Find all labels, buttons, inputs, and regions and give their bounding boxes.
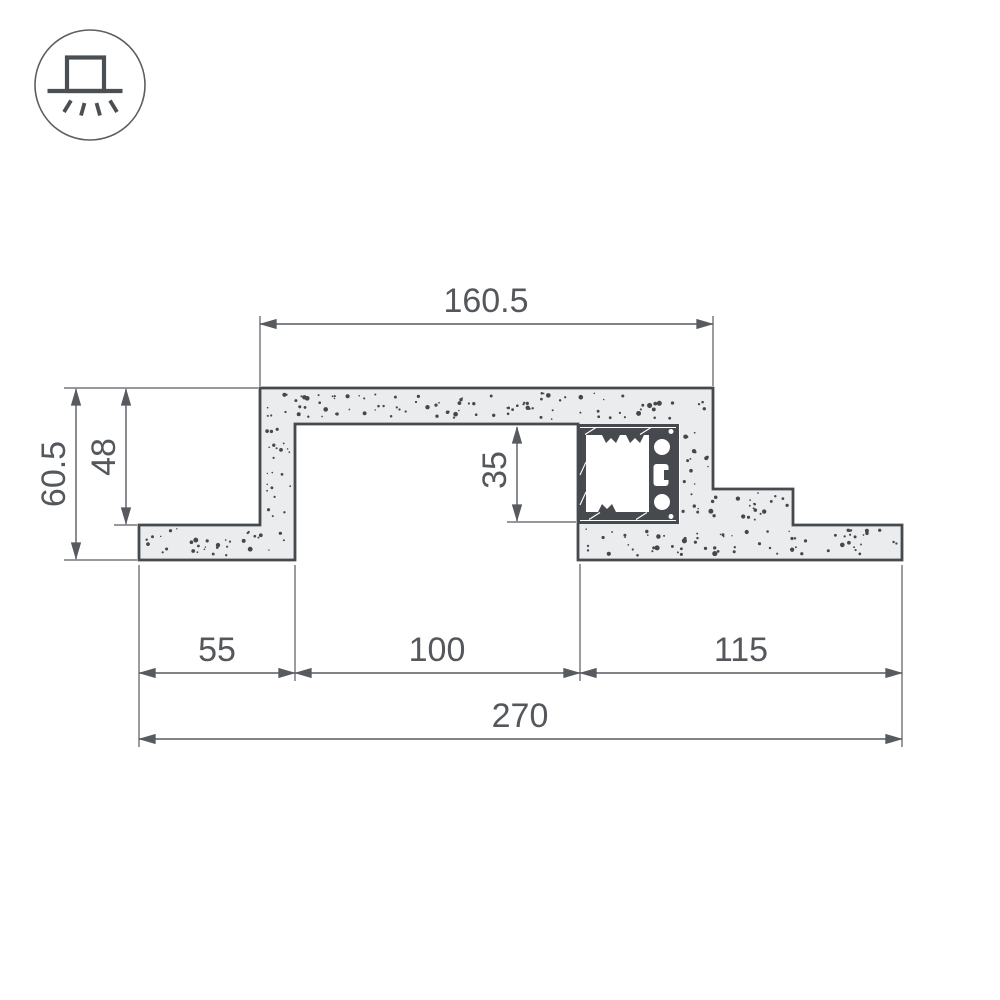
dimension-top-width: 160.5 [260,282,713,386]
dim-label-niche-height: 48 [85,438,123,476]
dimension-bottom-left: 55 [139,631,295,673]
dimension-profile-height: 35 [476,427,576,522]
drawing-canvas: 160.5 60.5 48 35 55 100 115 [0,0,1000,1000]
profile-screw-channel [654,494,670,510]
plaster-body [139,388,902,560]
dim-label-total-width: 270 [492,697,549,735]
dim-label-bottom-left: 55 [198,631,236,669]
dimension-bottom-opening: 100 [295,631,580,673]
category-badge [35,30,145,140]
dimension-total-width: 270 [139,697,902,739]
led-profile [577,424,680,524]
dim-label-profile-height: 35 [476,451,514,489]
dim-label-top-width: 160.5 [443,282,528,320]
dimension-niche-height: 48 [85,389,137,525]
cross-section [139,388,902,560]
badge-circle [35,30,145,140]
dim-label-bottom-right: 115 [714,631,768,669]
technical-drawing: 160.5 60.5 48 35 55 100 115 [0,0,1000,1000]
dim-label-bottom-opening: 100 [409,631,466,669]
dimension-bottom-right: 115 [580,631,902,673]
dim-label-total-height: 60.5 [35,441,73,507]
profile-screw-channel [654,439,670,455]
recessed-downlight-icon [48,58,123,116]
